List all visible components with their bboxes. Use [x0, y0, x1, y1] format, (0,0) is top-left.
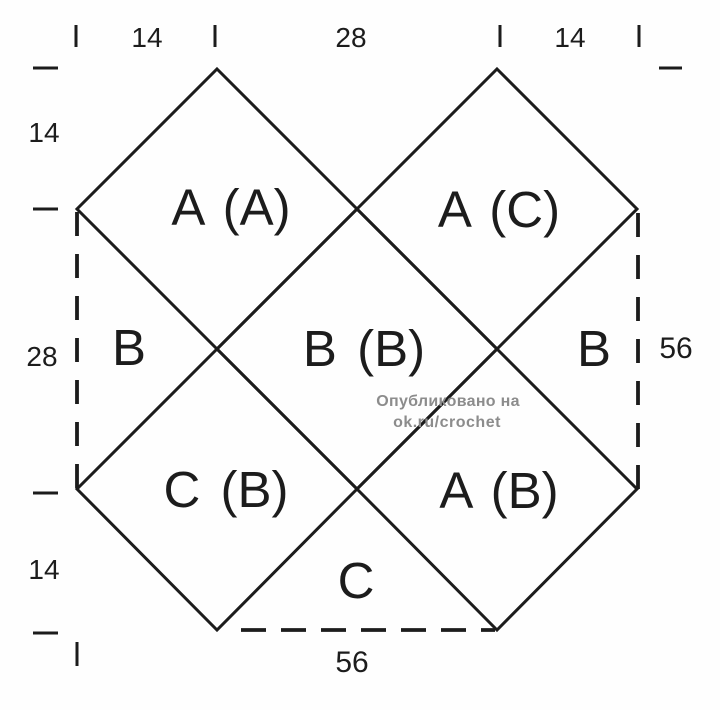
svg-text:B: B: [112, 319, 146, 376]
svg-text:14: 14: [28, 117, 59, 148]
svg-text:56: 56: [335, 646, 368, 679]
svg-text:A (C): A (C): [438, 181, 560, 238]
svg-text:14: 14: [554, 22, 585, 53]
svg-text:56: 56: [659, 332, 692, 365]
svg-text:A (A): A (A): [171, 179, 290, 236]
svg-text:A (B): A (B): [439, 462, 558, 519]
svg-text:14: 14: [131, 22, 162, 53]
svg-text:14: 14: [28, 554, 59, 585]
svg-text:C (B): C (B): [164, 461, 289, 518]
svg-text:B (B): B (B): [303, 320, 425, 377]
svg-text:28: 28: [335, 22, 366, 53]
svg-text:C: C: [338, 552, 375, 609]
svg-text:B: B: [577, 320, 611, 377]
svg-text:ok.ru/crochet: ok.ru/crochet: [393, 414, 501, 431]
svg-text:28: 28: [26, 341, 57, 372]
svg-text:Опубликовано на: Опубликовано на: [376, 393, 520, 410]
